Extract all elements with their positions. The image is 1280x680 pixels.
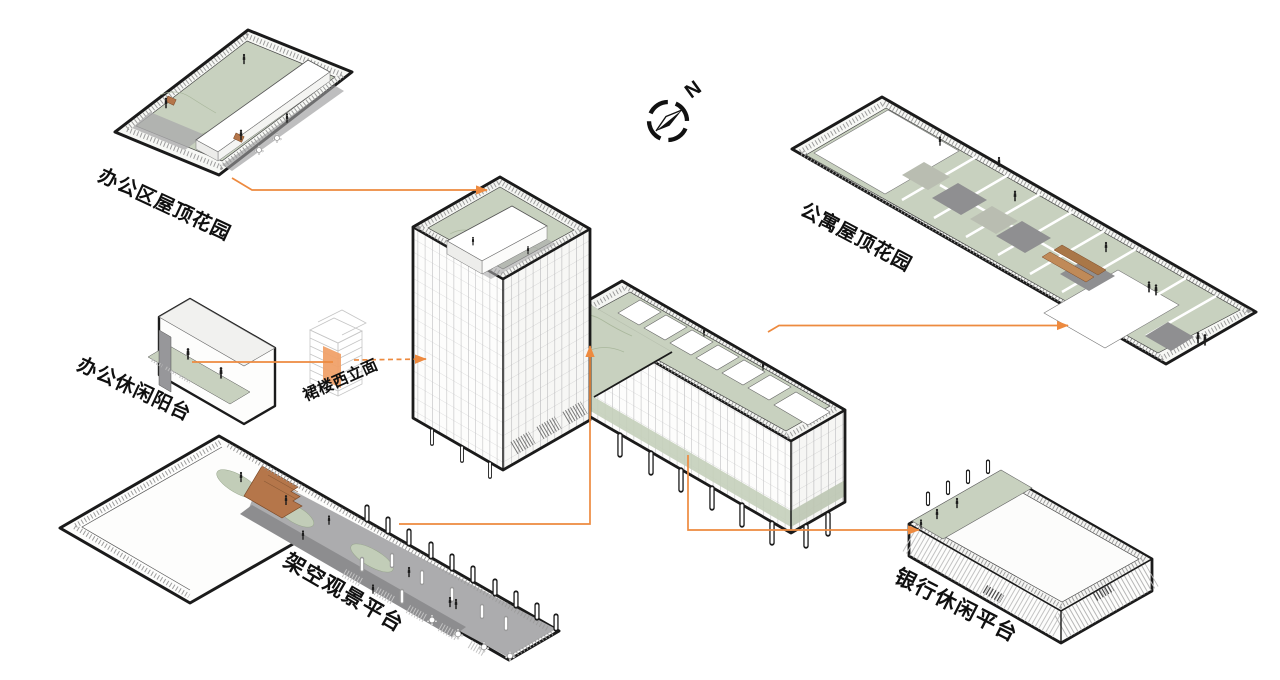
compass-north-label: N — [681, 77, 706, 103]
north-compass-icon: N — [643, 77, 706, 146]
diagram-canvas: N — [0, 0, 1280, 680]
leader-apartment-roof-garden — [768, 326, 1068, 333]
main-building — [413, 177, 845, 546]
viewing-platform-detail — [60, 436, 559, 661]
bank-platform-detail — [909, 462, 1152, 643]
person-figure — [372, 584, 374, 593]
office-tower — [413, 177, 590, 477]
label-office-roof-garden: 办公区屋顶花园 — [95, 164, 235, 245]
person-figure — [1204, 334, 1207, 346]
architecture-axonometric-diagram: N — [0, 0, 1280, 680]
leader-office-roof-garden — [232, 178, 487, 190]
office-roof-garden-plan — [115, 30, 352, 175]
